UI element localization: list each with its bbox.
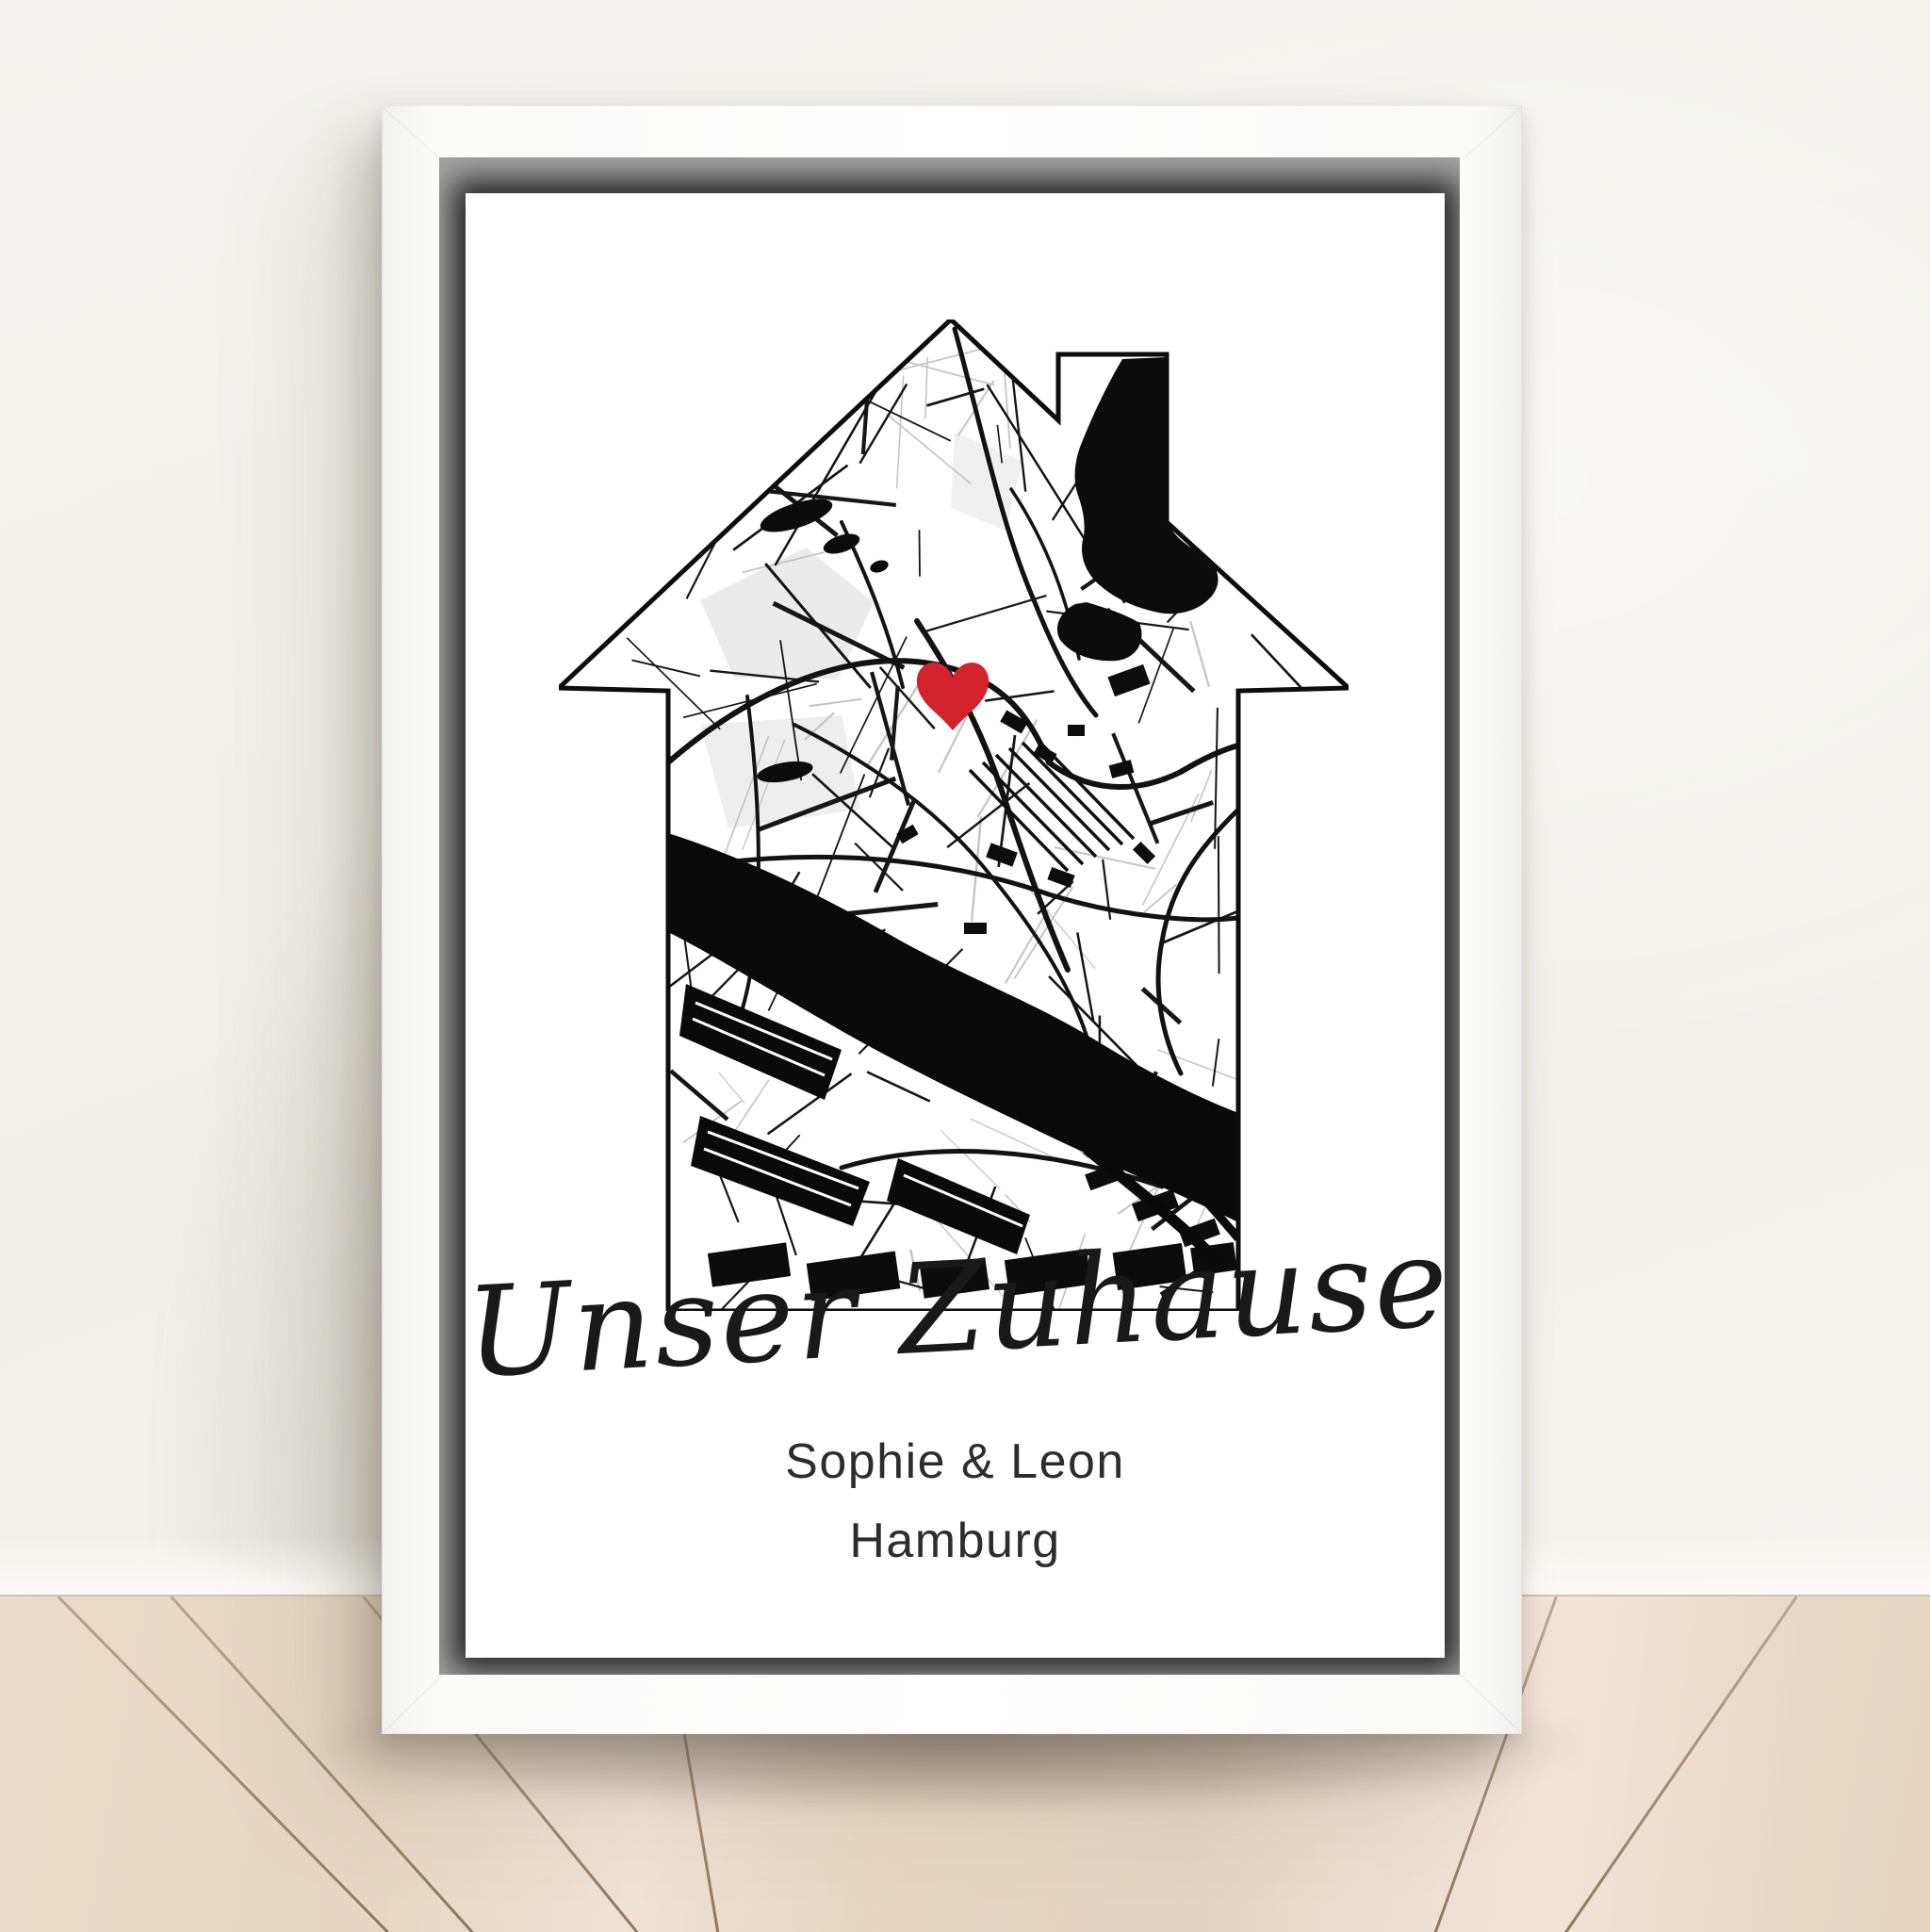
picture-frame: Unser Zuhause Sophie & Leon Hamburg [382,106,1522,1734]
frame-miter-joint [1464,106,1522,158]
framed-poster-photo: Unser Zuhause Sophie & Leon Hamburg [0,0,1930,1930]
poster-names: Sophie & Leon [466,1430,1445,1494]
frame-miter-joint [1462,1676,1521,1733]
frame-shadow-gap: Unser Zuhause Sophie & Leon Hamburg [439,157,1460,1675]
frame-miter-joint [382,106,439,158]
poster-city: Hamburg [466,1509,1445,1573]
frame-miter-joint [383,1676,442,1733]
poster: Unser Zuhause Sophie & Leon Hamburg [466,193,1445,1658]
house-map-graphic [559,319,1349,1311]
